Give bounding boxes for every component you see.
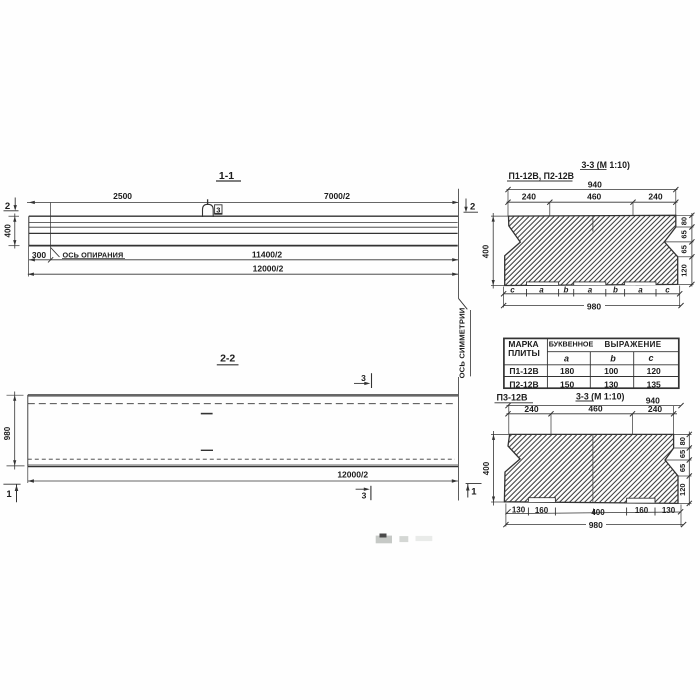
svg-text:400: 400 xyxy=(482,244,491,258)
svg-text:2: 2 xyxy=(470,202,475,213)
svg-text:3: 3 xyxy=(362,491,367,501)
svg-text:3-3 (М 1:10): 3-3 (М 1:10) xyxy=(582,160,630,170)
svg-text:120: 120 xyxy=(680,264,689,277)
svg-text:ОСЬ СИММЕТРИИ: ОСЬ СИММЕТРИИ xyxy=(458,308,467,379)
svg-text:1: 1 xyxy=(6,489,12,500)
svg-text:65: 65 xyxy=(680,245,689,253)
svg-text:80: 80 xyxy=(678,437,687,445)
svg-text:65: 65 xyxy=(678,464,687,472)
svg-text:400: 400 xyxy=(482,461,491,475)
svg-text:2-2: 2-2 xyxy=(220,353,235,365)
svg-text:7000/2: 7000/2 xyxy=(324,191,350,201)
svg-text:65: 65 xyxy=(680,230,689,238)
svg-text:ПЛИТЫ: ПЛИТЫ xyxy=(508,348,540,358)
svg-text:a: a xyxy=(588,286,593,295)
svg-text:2500: 2500 xyxy=(113,191,132,201)
svg-text:180: 180 xyxy=(560,366,574,376)
svg-text:c: c xyxy=(648,353,653,363)
svg-text:БУКВЕННОЕ: БУКВЕННОЕ xyxy=(549,340,594,349)
svg-text:ВЫРАЖЕНИЕ: ВЫРАЖЕНИЕ xyxy=(604,340,661,349)
svg-text:c: c xyxy=(510,286,515,295)
svg-text:П3-12В: П3-12В xyxy=(497,393,528,403)
svg-text:1: 1 xyxy=(471,487,477,498)
svg-text:120: 120 xyxy=(647,366,661,376)
svg-text:400: 400 xyxy=(591,508,605,517)
svg-text:130: 130 xyxy=(604,379,618,389)
svg-text:65: 65 xyxy=(678,450,687,458)
svg-text:980: 980 xyxy=(587,302,601,312)
svg-text:a: a xyxy=(539,286,544,295)
svg-text:b: b xyxy=(564,286,569,295)
svg-text:160: 160 xyxy=(535,506,549,515)
svg-text:11400/2: 11400/2 xyxy=(252,249,283,259)
svg-text:b: b xyxy=(613,286,618,295)
svg-text:980: 980 xyxy=(589,520,603,530)
svg-text:150: 150 xyxy=(560,379,574,389)
svg-text:П2-12В: П2-12В xyxy=(509,380,538,390)
svg-text:135: 135 xyxy=(647,379,661,389)
svg-text:c: c xyxy=(665,286,670,295)
svg-text:980: 980 xyxy=(3,426,12,440)
svg-text:400: 400 xyxy=(4,224,13,238)
svg-text:12000/2: 12000/2 xyxy=(253,264,284,274)
svg-text:3: 3 xyxy=(216,205,220,214)
svg-text:a: a xyxy=(564,354,569,364)
svg-text:940: 940 xyxy=(588,179,602,189)
svg-text:120: 120 xyxy=(678,483,687,496)
svg-text:3-3 (М 1:10): 3-3 (М 1:10) xyxy=(576,392,624,402)
svg-text:2: 2 xyxy=(5,201,10,212)
svg-text:a: a xyxy=(638,286,643,295)
svg-text:130: 130 xyxy=(512,506,526,515)
svg-text:460: 460 xyxy=(588,404,602,414)
svg-text:100: 100 xyxy=(604,366,618,376)
svg-text:160: 160 xyxy=(635,506,649,515)
svg-text:240: 240 xyxy=(648,192,662,202)
svg-text:240: 240 xyxy=(522,192,536,202)
svg-text:П1-12В, П2-12В: П1-12В, П2-12В xyxy=(509,171,574,181)
svg-text:240: 240 xyxy=(648,404,662,414)
svg-text:3: 3 xyxy=(361,373,366,383)
svg-text:b: b xyxy=(610,354,616,364)
svg-text:460: 460 xyxy=(587,192,601,202)
svg-text:130: 130 xyxy=(662,506,676,515)
svg-text:12000/2: 12000/2 xyxy=(337,470,368,480)
svg-text:1-1: 1-1 xyxy=(219,170,234,182)
svg-text:240: 240 xyxy=(524,404,538,414)
svg-text:80: 80 xyxy=(680,217,689,225)
svg-text:ОСЬ ОПИРАНИЯ: ОСЬ ОПИРАНИЯ xyxy=(63,250,124,259)
svg-text:П1-12В: П1-12В xyxy=(509,366,538,376)
